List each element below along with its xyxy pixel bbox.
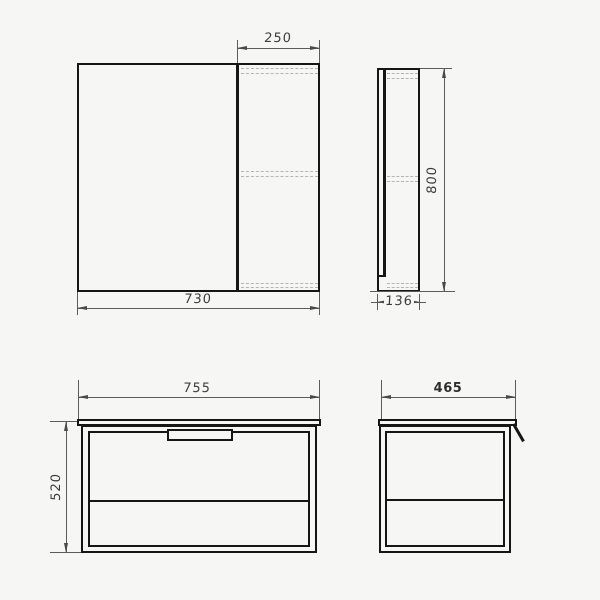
arrowhead-left: [381, 395, 391, 399]
dimension-line-465: [381, 397, 516, 398]
extension-line: [515, 380, 516, 419]
wall-mount-bracket: [512, 423, 525, 442]
dim-label-countertop-depth: 465: [428, 382, 468, 396]
extension-line: [381, 380, 382, 419]
arrowhead-right: [506, 395, 516, 399]
vanity-side-view: 465: [0, 0, 600, 600]
drawer-divider-line: [385, 499, 505, 501]
side-panel-inset: [385, 431, 505, 547]
technical-drawing-canvas: 250 730 800 136: [0, 0, 600, 600]
